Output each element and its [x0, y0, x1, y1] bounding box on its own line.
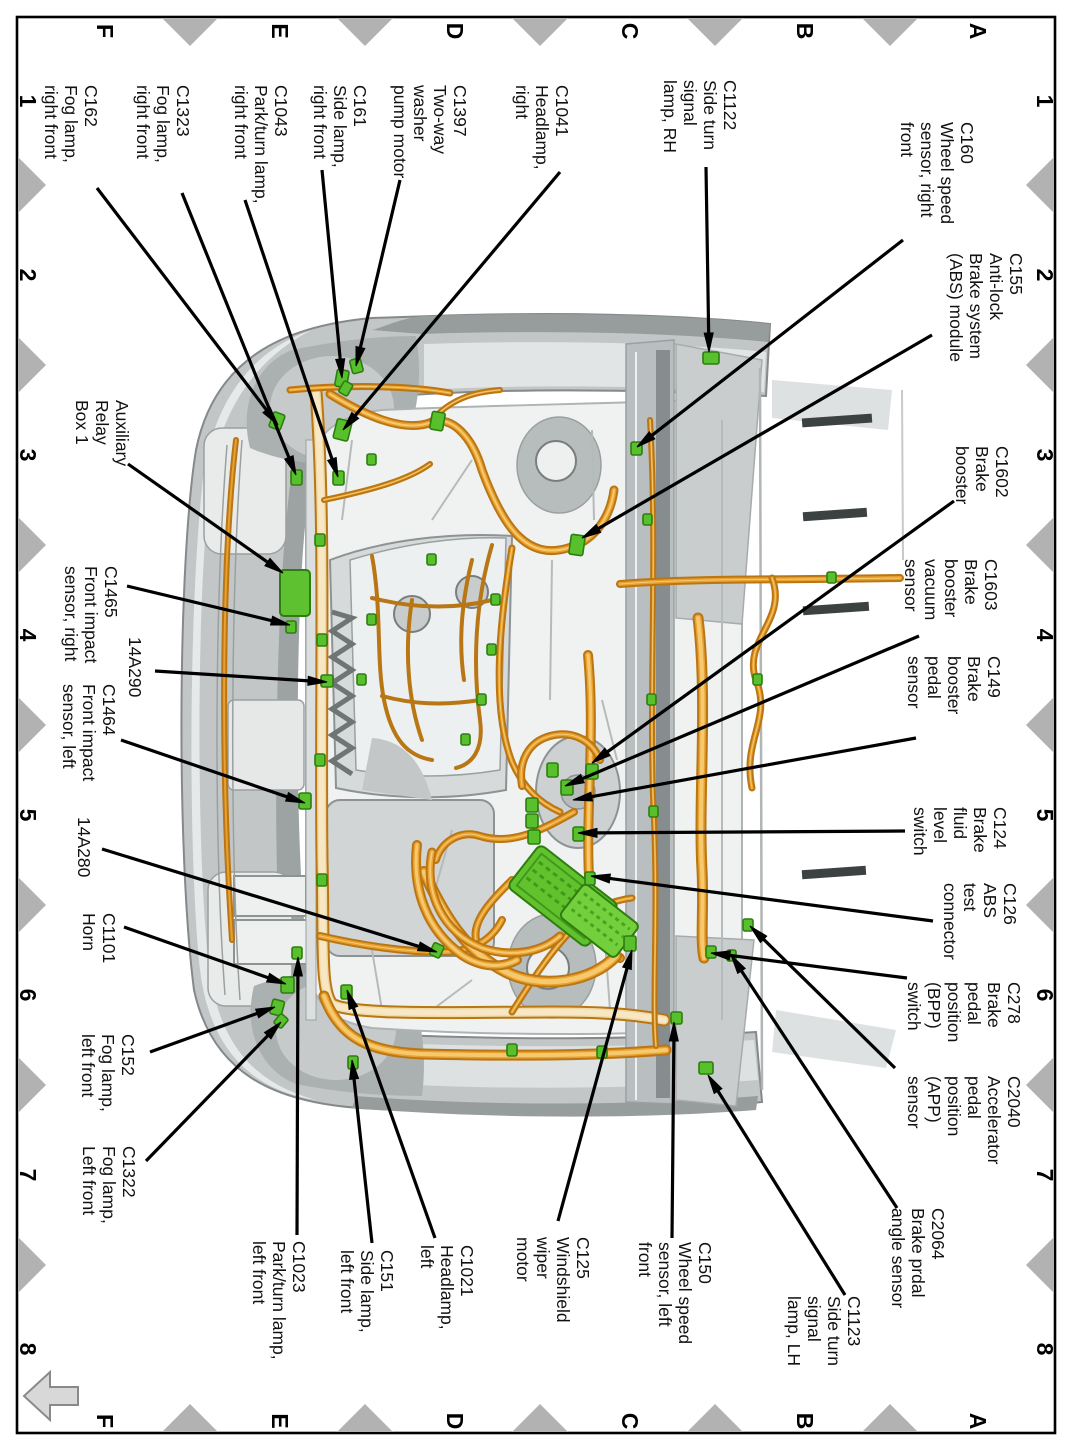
svg-text:Park/turn lamp,: Park/turn lamp, [269, 1241, 289, 1360]
svg-text:C1397: C1397 [450, 85, 470, 137]
svg-text:C1101: C1101 [99, 913, 119, 963]
svg-text:left front: left front [249, 1241, 269, 1304]
svg-text:Brake prdal: Brake prdal [908, 1208, 928, 1298]
svg-text:booster: booster [952, 446, 972, 505]
svg-text:right: right [512, 85, 532, 119]
svg-text:C1603: C1603 [981, 559, 1001, 611]
svg-text:pedal: pedal [924, 656, 944, 699]
svg-text:D: D [442, 23, 468, 40]
svg-text:wiper: wiper [533, 1236, 553, 1279]
svg-text:Brake: Brake [961, 559, 981, 605]
svg-text:6: 6 [15, 989, 41, 1002]
svg-text:sensor, left: sensor, left [59, 684, 79, 769]
svg-text:right front: right front [310, 85, 330, 159]
svg-text:switch: switch [910, 807, 930, 856]
svg-text:pedal: pedal [964, 1076, 984, 1119]
svg-text:pump motor: pump motor [390, 85, 410, 179]
svg-text:sensor, right: sensor, right [917, 122, 937, 217]
svg-text:Box 1: Box 1 [72, 400, 92, 445]
svg-text:Front impact: Front impact [79, 684, 99, 781]
svg-text:C2040: C2040 [1004, 1076, 1024, 1128]
svg-text:Brake system: Brake system [966, 253, 986, 359]
svg-text:A: A [965, 1413, 991, 1430]
svg-text:Side turn: Side turn [700, 80, 720, 150]
svg-text:C1602: C1602 [992, 446, 1012, 498]
svg-text:8: 8 [15, 1343, 41, 1356]
svg-text:fluid: fluid [950, 807, 970, 839]
svg-text:B: B [792, 1413, 818, 1430]
svg-text:C151: C151 [377, 1250, 397, 1292]
svg-text:Brake: Brake [984, 982, 1004, 1028]
svg-text:C278: C278 [1004, 982, 1024, 1024]
svg-text:F: F [92, 24, 118, 38]
svg-text:connector: connector [940, 883, 960, 960]
svg-text:C: C [617, 23, 643, 40]
svg-text:Anti-lock: Anti-lock [986, 253, 1006, 320]
svg-text:Wheel speed: Wheel speed [937, 122, 957, 224]
svg-text:6: 6 [1032, 989, 1058, 1002]
svg-text:signal: signal [680, 80, 700, 126]
svg-text:ABS: ABS [980, 883, 1000, 918]
svg-text:C152: C152 [118, 1034, 138, 1076]
svg-text:3: 3 [1032, 449, 1058, 462]
svg-text:4: 4 [15, 629, 41, 642]
svg-text:sensor: sensor [901, 559, 921, 612]
svg-text:pedal: pedal [964, 982, 984, 1025]
svg-text:C149: C149 [984, 656, 1004, 698]
svg-text:5: 5 [15, 809, 41, 822]
svg-text:(ABS) module: (ABS) module [946, 253, 966, 362]
svg-text:C150: C150 [695, 1242, 715, 1284]
svg-text:C1043: C1043 [271, 85, 291, 137]
svg-text:lamp, RH: lamp, RH [660, 80, 680, 153]
svg-text:position: position [944, 1076, 964, 1136]
svg-text:Fog lamp,: Fog lamp, [98, 1034, 118, 1112]
svg-text:8: 8 [1032, 1343, 1058, 1356]
svg-text:E: E [267, 23, 293, 38]
svg-text:C160: C160 [957, 122, 977, 164]
svg-text:Relay: Relay [92, 400, 112, 445]
svg-text:7: 7 [1032, 1169, 1058, 1182]
svg-text:C: C [617, 1413, 643, 1430]
svg-text:C1464: C1464 [99, 684, 119, 736]
svg-text:sensor, left: sensor, left [655, 1242, 675, 1327]
svg-text:lamp, LH: lamp, LH [784, 1296, 804, 1366]
svg-text:front: front [897, 122, 917, 157]
svg-text:F: F [92, 1414, 118, 1428]
svg-text:Fog lamp,: Fog lamp, [153, 85, 173, 163]
svg-text:Two-way: Two-way [430, 85, 450, 154]
svg-text:sensor: sensor [904, 1076, 924, 1129]
svg-text:vacuum: vacuum [921, 559, 941, 620]
svg-text:1: 1 [15, 95, 41, 108]
svg-text:motor: motor [513, 1237, 533, 1282]
svg-text:level: level [930, 807, 950, 843]
svg-text:Brake: Brake [964, 656, 984, 702]
svg-text:Windshield: Windshield [553, 1237, 573, 1323]
svg-text:E: E [267, 1413, 293, 1428]
svg-text:Headlamp,: Headlamp, [532, 85, 552, 170]
svg-text:5: 5 [1032, 809, 1058, 822]
svg-text:7: 7 [15, 1169, 41, 1182]
svg-text:1: 1 [1032, 95, 1058, 108]
svg-text:Accelerator: Accelerator [984, 1076, 1004, 1165]
svg-text:signal: signal [804, 1296, 824, 1342]
svg-text:C1021: C1021 [457, 1245, 477, 1297]
svg-text:left front: left front [78, 1034, 98, 1097]
svg-text:front: front [635, 1242, 655, 1277]
svg-text:Front impact: Front impact [81, 566, 101, 663]
svg-text:3: 3 [15, 449, 41, 462]
svg-text:Side lamp,: Side lamp, [357, 1250, 377, 1333]
svg-text:C1465: C1465 [101, 566, 121, 618]
svg-text:Fog lamp,: Fog lamp, [99, 1146, 119, 1224]
svg-text:D: D [442, 1413, 468, 1430]
svg-text:C1041: C1041 [552, 85, 572, 137]
svg-text:Brake: Brake [972, 446, 992, 492]
svg-text:2: 2 [1032, 269, 1058, 282]
svg-text:washer: washer [410, 84, 430, 142]
svg-text:test: test [960, 883, 980, 911]
svg-text:Wheel speed: Wheel speed [675, 1242, 695, 1344]
svg-text:C162: C162 [81, 85, 101, 127]
svg-text:Fog lamp,: Fog lamp, [61, 85, 81, 163]
svg-text:C1122: C1122 [720, 80, 740, 130]
svg-text:C126: C126 [1000, 883, 1020, 925]
svg-text:2: 2 [15, 269, 41, 282]
svg-text:booster: booster [941, 559, 961, 618]
svg-text:right front: right front [133, 85, 153, 159]
svg-text:14A290: 14A290 [125, 637, 145, 698]
svg-text:Park/turn lamp,: Park/turn lamp, [251, 85, 271, 204]
svg-text:Left front: Left front [79, 1146, 99, 1215]
svg-text:Auxiliary: Auxiliary [112, 400, 132, 466]
svg-text:Horn: Horn [79, 913, 99, 951]
svg-text:C155: C155 [1006, 253, 1026, 295]
svg-text:left front: left front [337, 1250, 357, 1313]
svg-text:4: 4 [1032, 629, 1058, 642]
svg-text:C161: C161 [350, 85, 370, 127]
svg-text:angle sensor: angle sensor [888, 1208, 908, 1308]
svg-text:B: B [792, 23, 818, 40]
svg-text:C1322: C1322 [119, 1146, 139, 1198]
svg-text:right front: right front [231, 85, 251, 159]
svg-text:Side lamp,: Side lamp, [330, 85, 350, 168]
svg-text:C1023: C1023 [289, 1241, 309, 1293]
svg-text:C1323: C1323 [173, 85, 193, 137]
svg-text:C2064: C2064 [928, 1208, 948, 1260]
svg-text:position: position [944, 982, 964, 1042]
svg-text:Brake: Brake [970, 807, 990, 853]
svg-text:left: left [417, 1245, 437, 1268]
svg-text:C124: C124 [990, 807, 1010, 849]
svg-text:14A280: 14A280 [74, 817, 94, 878]
svg-text:(BPP): (BPP) [924, 982, 944, 1029]
svg-text:Headlamp,: Headlamp, [437, 1245, 457, 1330]
svg-text:A: A [965, 23, 991, 40]
svg-text:right front: right front [41, 85, 61, 159]
svg-text:sensor: sensor [904, 656, 924, 709]
svg-text:booster: booster [944, 656, 964, 715]
svg-text:C125: C125 [573, 1237, 593, 1279]
svg-text:Side turn: Side turn [824, 1296, 844, 1366]
svg-text:sensor, right: sensor, right [61, 566, 81, 661]
svg-text:(APP): (APP) [924, 1076, 944, 1123]
svg-text:C1123: C1123 [844, 1296, 864, 1346]
svg-text:switch: switch [904, 982, 924, 1031]
